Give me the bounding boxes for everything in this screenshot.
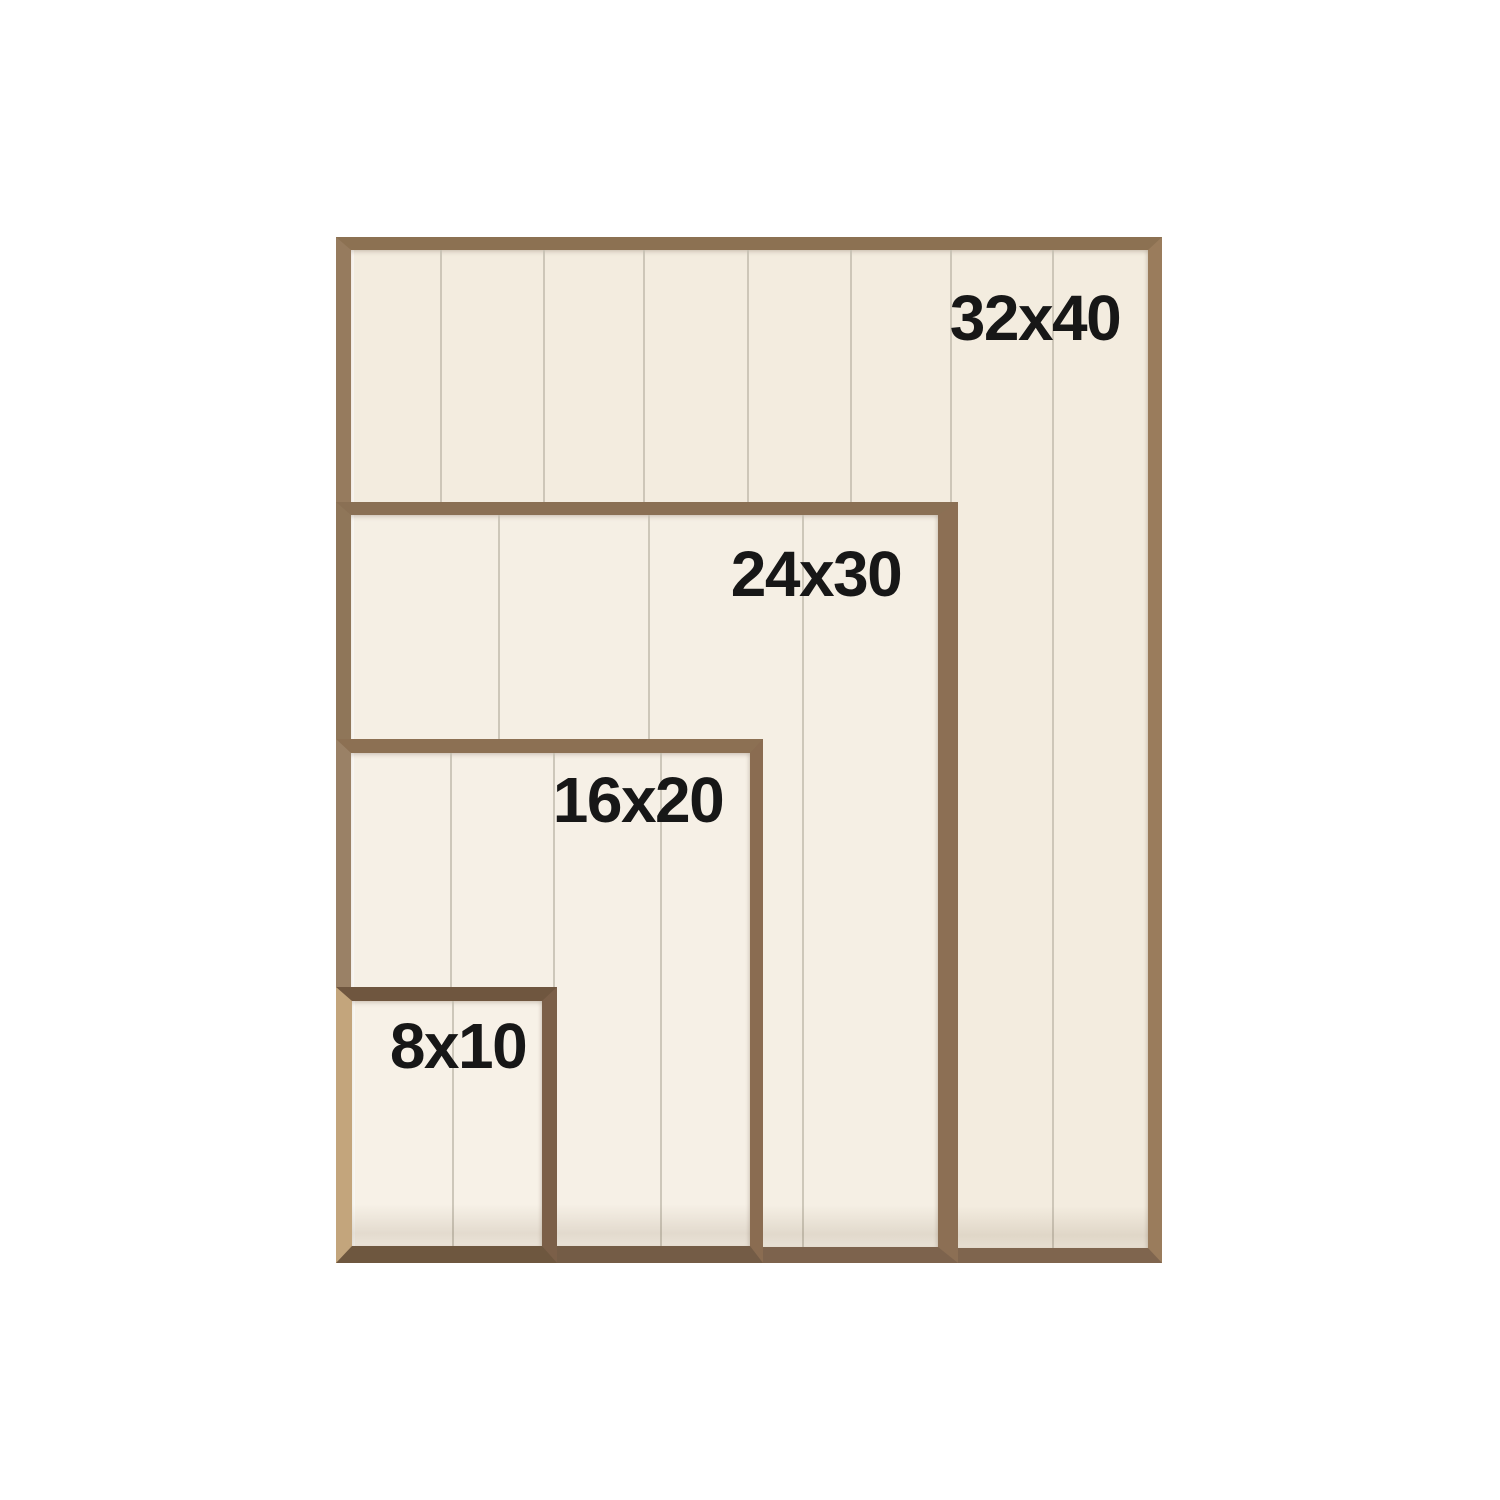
size-label-16x20: 16x20 [553,768,723,832]
size-label-24x30: 24x30 [731,542,901,606]
frame-8x10: 8x10 [336,987,557,1263]
size-label-32x40: 32x40 [950,286,1120,350]
frame-stack: 32x4024x3016x208x10 [0,0,1500,1500]
plank-seam-line [1052,250,1054,1248]
plank-seam-line [802,515,804,1247]
size-label-8x10: 8x10 [390,1014,526,1078]
frame-size-chart: 32x4024x3016x208x10 [0,0,1500,1500]
frame-interior-8x10: 8x10 [352,1001,542,1246]
interior-floor-shadow [352,1204,542,1246]
